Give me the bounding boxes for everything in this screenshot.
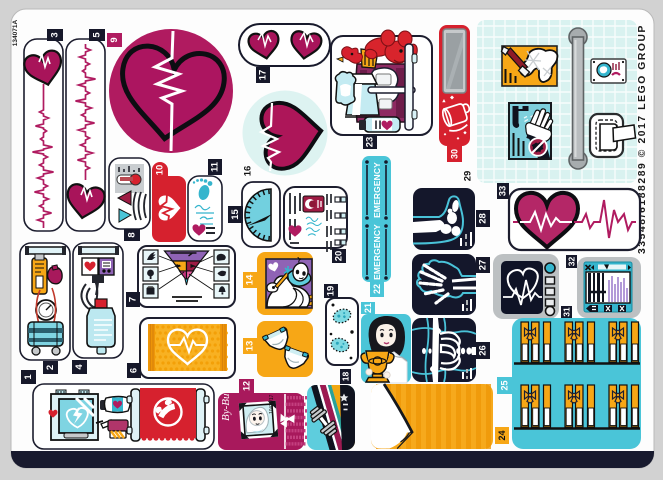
svg-text:14: 14 — [245, 274, 256, 285]
svg-text:33: 33 — [498, 186, 509, 197]
svg-text:25: 25 — [500, 380, 510, 390]
svg-text:18: 18 — [341, 372, 351, 382]
svg-text:7: 7 — [128, 297, 139, 302]
svg-text:30: 30 — [450, 149, 460, 159]
svg-text:3: 3 — [50, 32, 61, 37]
svg-text:134071A: 134071A — [12, 20, 19, 47]
svg-text:15: 15 — [230, 209, 241, 220]
svg-text:22: 22 — [372, 284, 382, 294]
svg-text:12: 12 — [242, 381, 252, 391]
svg-text:19: 19 — [326, 286, 337, 297]
svg-text:10/09/17: 10/09/17 — [269, 394, 275, 414]
svg-text:29: 29 — [463, 171, 474, 182]
svg-text:28: 28 — [478, 213, 489, 224]
svg-text:27: 27 — [478, 260, 489, 271]
svg-text:24: 24 — [497, 430, 507, 440]
svg-text:23: 23 — [365, 137, 376, 148]
svg-text:EMERGENCY: EMERGENCY — [372, 224, 382, 280]
svg-text:By-Bu: By-Bu — [220, 393, 232, 421]
svg-text:16: 16 — [243, 166, 254, 177]
svg-text:11: 11 — [210, 161, 221, 172]
svg-text:EMERGENCY: EMERGENCY — [372, 162, 382, 218]
svg-text:5: 5 — [92, 32, 103, 38]
svg-text:2: 2 — [45, 365, 56, 370]
svg-text:6: 6 — [129, 368, 140, 373]
svg-text:32: 32 — [567, 257, 577, 267]
svg-text:4: 4 — [74, 364, 85, 370]
svg-text:1: 1 — [23, 374, 34, 380]
svg-text:17: 17 — [258, 70, 269, 81]
svg-text:21: 21 — [363, 303, 373, 313]
svg-text:9: 9 — [109, 37, 120, 42]
svg-text:10: 10 — [155, 165, 166, 176]
svg-text:26: 26 — [478, 345, 489, 356]
svg-text:8: 8 — [127, 232, 138, 237]
svg-text:20: 20 — [334, 251, 345, 262]
svg-text:31: 31 — [562, 307, 572, 317]
svg-text:13: 13 — [245, 341, 256, 352]
